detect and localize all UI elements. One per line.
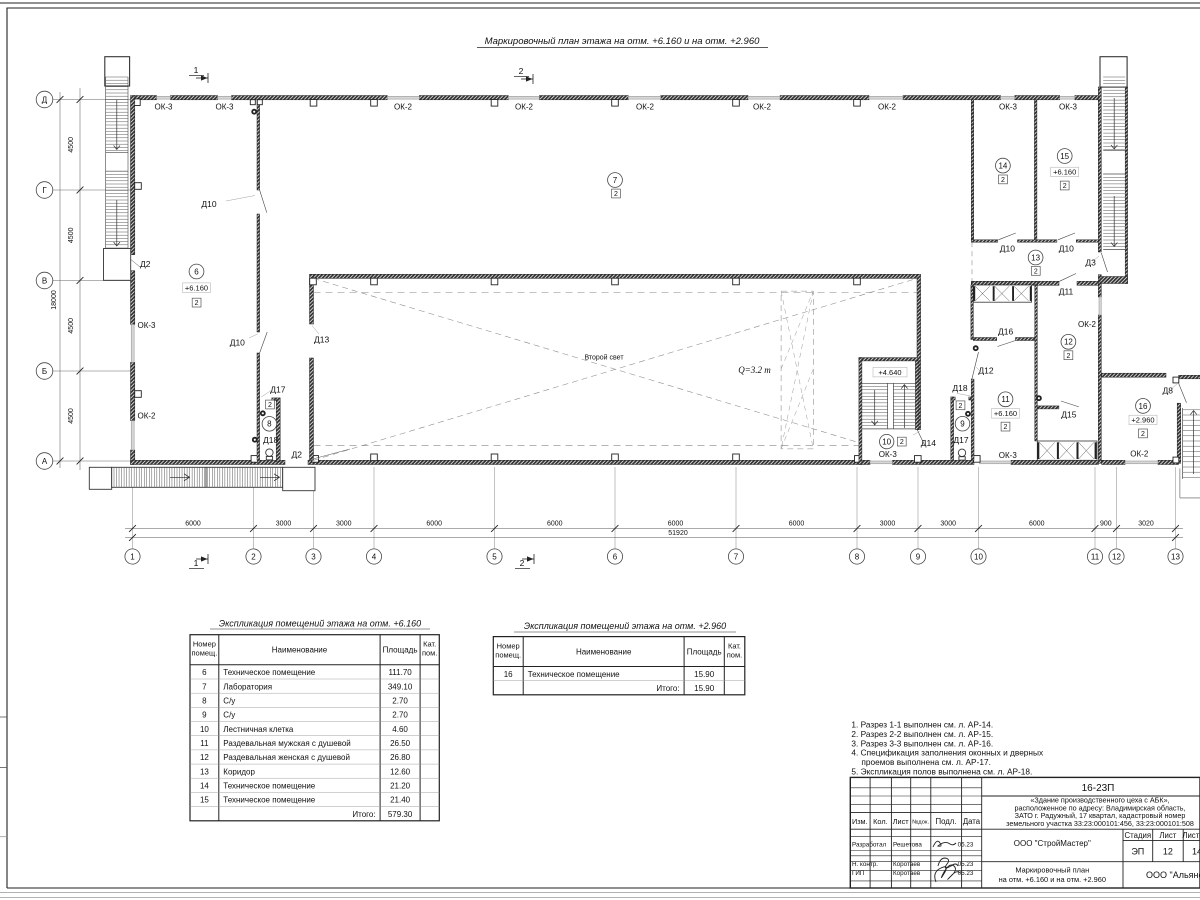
svg-text:5: 5 — [492, 552, 497, 561]
svg-text:3000: 3000 — [880, 521, 896, 528]
svg-text:Площадь: Площадь — [383, 646, 418, 655]
svg-text:13: 13 — [200, 767, 209, 776]
svg-text:ОК-3: ОК-3 — [216, 103, 235, 112]
svg-text:21.40: 21.40 — [390, 796, 411, 805]
svg-text:ГИП: ГИП — [852, 870, 865, 877]
svg-text:11: 11 — [200, 739, 209, 748]
svg-text:Номер: Номер — [497, 641, 520, 650]
svg-text:помещ.: помещ. — [495, 650, 521, 659]
svg-text:1: 1 — [194, 558, 199, 568]
svg-text:2: 2 — [1001, 177, 1005, 184]
svg-text:Номер: Номер — [193, 640, 216, 649]
svg-text:16: 16 — [504, 670, 513, 679]
svg-text:+6.160: +6.160 — [994, 409, 1017, 418]
svg-text:18000: 18000 — [51, 290, 58, 310]
svg-text:ОК-3: ОК-3 — [999, 103, 1018, 112]
svg-text:14: 14 — [1192, 847, 1200, 857]
svg-text:ОК-3: ОК-3 — [138, 321, 157, 330]
svg-text:Д10: Д10 — [201, 199, 216, 209]
svg-text:12: 12 — [1112, 552, 1121, 561]
svg-text:Экспликация помещений этажа на: Экспликация помещений этажа на отм. +6.1… — [219, 618, 421, 628]
svg-text:12: 12 — [1064, 338, 1073, 347]
svg-text:13: 13 — [1171, 552, 1180, 561]
svg-text:ОК-2: ОК-2 — [878, 103, 897, 112]
svg-text:ОК-2: ОК-2 — [394, 103, 413, 112]
svg-text:ОК-3: ОК-3 — [879, 450, 898, 459]
svg-text:ОК-2: ОК-2 — [1130, 450, 1149, 459]
svg-text:ОК-2: ОК-2 — [138, 412, 157, 421]
svg-text:Листов: Листов — [1182, 831, 1200, 840]
svg-text:6000: 6000 — [185, 521, 201, 528]
svg-text:3000: 3000 — [940, 521, 956, 528]
svg-text:14: 14 — [200, 782, 209, 791]
svg-text:05.23: 05.23 — [958, 861, 974, 868]
svg-text:ООО "СтройМастер": ООО "СтройМастер" — [1014, 839, 1091, 848]
svg-text:Техническое помещение: Техническое помещение — [223, 796, 315, 805]
svg-text:на отм. +6.160 и на отм. +2.96: на отм. +6.160 и на отм. +2.960 — [999, 875, 1106, 884]
svg-text:15: 15 — [200, 796, 209, 805]
svg-text:Д17: Д17 — [953, 435, 968, 445]
svg-text:С/у: С/у — [223, 711, 235, 720]
svg-text:2: 2 — [614, 191, 618, 198]
svg-text:Д18: Д18 — [952, 383, 967, 393]
svg-text:Техническое помещение: Техническое помещение — [223, 668, 315, 677]
svg-text:05.23: 05.23 — [958, 870, 974, 877]
svg-text:Б: Б — [42, 367, 47, 376]
svg-text:900: 900 — [1100, 521, 1112, 528]
svg-text:2: 2 — [959, 403, 963, 410]
svg-text:12.60: 12.60 — [390, 767, 411, 776]
svg-text:Лестничная клетка: Лестничная клетка — [223, 725, 294, 734]
svg-text:пом.: пом. — [727, 650, 742, 659]
svg-text:9: 9 — [916, 552, 921, 561]
svg-text:6: 6 — [194, 267, 199, 276]
svg-text:6000: 6000 — [547, 521, 563, 528]
svg-text:+6.160: +6.160 — [1053, 168, 1076, 177]
svg-text:Экспликация помещений этажа на: Экспликация помещений этажа на отм. +2.9… — [524, 621, 726, 631]
svg-text:4: 4 — [372, 552, 377, 561]
svg-text:Д14: Д14 — [921, 438, 936, 448]
svg-text:7: 7 — [202, 682, 207, 691]
svg-text:Маркировочный план этажа на от: Маркировочный план этажа на отм. +6.160 … — [485, 36, 761, 47]
svg-text:ОК-3: ОК-3 — [999, 451, 1018, 460]
svg-text:5. Экспликация полов выполнена: 5. Экспликация полов выполнена см. л. АР… — [851, 767, 1032, 777]
svg-text:Второй свет: Второй свет — [584, 354, 624, 362]
svg-text:ОК-2: ОК-2 — [1078, 320, 1097, 329]
svg-text:Д2: Д2 — [292, 449, 303, 459]
svg-text:Изм.: Изм. — [852, 817, 868, 826]
svg-text:Н. контр.: Н. контр. — [852, 861, 878, 868]
svg-text:3: 3 — [311, 552, 316, 561]
svg-text:Стадия: Стадия — [1125, 831, 1152, 840]
svg-text:2: 2 — [195, 300, 199, 307]
svg-text:4500: 4500 — [68, 227, 75, 243]
svg-text:Д16: Д16 — [998, 327, 1013, 337]
svg-text:ЭП: ЭП — [1131, 847, 1144, 857]
svg-text:8: 8 — [855, 552, 860, 561]
svg-text:111.70: 111.70 — [388, 668, 412, 677]
svg-text:Д18: Д18 — [263, 435, 278, 445]
svg-text:15.90: 15.90 — [694, 670, 715, 679]
svg-text:2.70: 2.70 — [392, 697, 408, 706]
svg-text:Подл.: Подл. — [935, 817, 956, 826]
svg-text:4500: 4500 — [68, 408, 75, 424]
svg-text:3020: 3020 — [1138, 521, 1154, 528]
svg-text:10: 10 — [882, 438, 891, 447]
svg-text:Г: Г — [42, 186, 47, 195]
svg-text:Д8: Д8 — [1163, 386, 1174, 396]
svg-text:2: 2 — [251, 552, 256, 561]
svg-text:12: 12 — [1163, 847, 1173, 857]
svg-text:+4.640: +4.640 — [878, 368, 901, 377]
svg-text:2: 2 — [1141, 431, 1145, 438]
svg-text:2: 2 — [1063, 183, 1067, 190]
svg-text:+2.960: +2.960 — [1131, 416, 1154, 425]
svg-text:Площадь: Площадь — [687, 647, 722, 656]
svg-text:9: 9 — [202, 711, 207, 720]
svg-text:Д10: Д10 — [1000, 244, 1015, 254]
svg-text:3000: 3000 — [276, 521, 292, 528]
svg-text:Кат.: Кат. — [728, 641, 741, 650]
svg-text:Разработал: Разработал — [852, 841, 887, 849]
svg-text:6000: 6000 — [426, 521, 442, 528]
svg-text:Раздевальная мужская с душевой: Раздевальная мужская с душевой — [223, 739, 350, 748]
svg-text:6000: 6000 — [668, 521, 684, 528]
svg-text:Лист: Лист — [1159, 831, 1176, 840]
svg-text:Коротаев: Коротаев — [893, 861, 921, 868]
svg-text:Кат.: Кат. — [423, 640, 436, 649]
svg-text:7: 7 — [613, 176, 618, 185]
svg-text:11: 11 — [1091, 552, 1100, 561]
svg-text:349.10: 349.10 — [388, 682, 413, 691]
svg-text:Д17: Д17 — [270, 384, 285, 394]
svg-text:15.90: 15.90 — [694, 684, 715, 693]
svg-text:Д3: Д3 — [1085, 258, 1096, 268]
svg-text:Q=3.2 т: Q=3.2 т — [738, 365, 771, 375]
svg-text:ОК-3: ОК-3 — [1059, 103, 1078, 112]
svg-text:2: 2 — [900, 439, 904, 446]
svg-text:2: 2 — [519, 66, 524, 76]
svg-text:6000: 6000 — [1029, 521, 1045, 528]
svg-text:Д15: Д15 — [1061, 410, 1076, 420]
svg-text:Раздевальная женская с душевой: Раздевальная женская с душевой — [223, 753, 350, 762]
svg-text:12: 12 — [200, 753, 209, 762]
svg-text:Итого:: Итого: — [656, 684, 679, 693]
svg-text:51920: 51920 — [668, 530, 688, 537]
svg-text:Техническое помещение: Техническое помещение — [223, 782, 315, 791]
svg-text:ОК-3: ОК-3 — [155, 103, 174, 112]
svg-text:6: 6 — [613, 552, 618, 561]
svg-text:8: 8 — [202, 697, 207, 706]
svg-text:помещ.: помещ. — [191, 649, 217, 658]
svg-text:Коридор: Коридор — [223, 767, 255, 776]
svg-text:2: 2 — [1066, 353, 1070, 360]
svg-text:3000: 3000 — [336, 521, 352, 528]
svg-text:26.50: 26.50 — [390, 739, 411, 748]
svg-text:579.30: 579.30 — [388, 810, 413, 819]
svg-text:Техническое помещение: Техническое помещение — [528, 670, 620, 679]
svg-text:9: 9 — [960, 420, 965, 429]
svg-text:21.20: 21.20 — [390, 782, 411, 791]
svg-text:15: 15 — [1060, 152, 1069, 161]
svg-text:Кол.: Кол. — [873, 817, 887, 826]
svg-text:Д13: Д13 — [314, 335, 329, 345]
svg-text:Д2: Д2 — [140, 259, 151, 269]
svg-text:16-23П: 16-23П — [1082, 783, 1115, 794]
svg-text:А: А — [42, 457, 48, 466]
svg-text:Д10: Д10 — [230, 338, 245, 348]
svg-text:пом.: пом. — [422, 649, 437, 658]
svg-text:Маркировочный план: Маркировочный план — [1015, 866, 1089, 875]
svg-text:1: 1 — [194, 65, 199, 75]
svg-text:16: 16 — [1139, 402, 1148, 411]
svg-text:Д: Д — [42, 95, 48, 104]
svg-text:+6.160: +6.160 — [185, 283, 208, 292]
svg-text:4500: 4500 — [68, 137, 75, 153]
svg-text:Д11: Д11 — [1059, 287, 1074, 297]
svg-text:ОК-2: ОК-2 — [636, 103, 655, 112]
svg-text:Лаборатория: Лаборатория — [223, 682, 272, 691]
svg-text:6000: 6000 — [789, 521, 805, 528]
svg-text:ОК-2: ОК-2 — [753, 103, 772, 112]
svg-text:10: 10 — [200, 725, 209, 734]
svg-text:2: 2 — [520, 558, 525, 568]
svg-text:6: 6 — [202, 668, 207, 677]
svg-text:26.80: 26.80 — [390, 753, 411, 762]
svg-text:№док.: №док. — [912, 819, 929, 825]
svg-text:Лист: Лист — [893, 817, 910, 826]
svg-text:4500: 4500 — [68, 318, 75, 334]
svg-text:В: В — [42, 276, 47, 285]
svg-text:Решетова: Решетова — [893, 842, 922, 849]
svg-text:7: 7 — [734, 552, 739, 561]
svg-text:ООО "Альянс": ООО "Альянс" — [1146, 870, 1200, 880]
svg-text:ОК-2: ОК-2 — [515, 103, 534, 112]
svg-text:Коротаев: Коротаев — [893, 870, 921, 877]
svg-text:14: 14 — [998, 162, 1007, 171]
svg-text:Дата: Дата — [963, 817, 981, 826]
svg-text:Итого:: Итого: — [352, 810, 375, 819]
svg-text:11: 11 — [1001, 395, 1010, 404]
svg-text:2: 2 — [268, 402, 272, 409]
svg-text:Наименование: Наименование — [272, 646, 328, 655]
svg-text:8: 8 — [267, 420, 272, 429]
svg-text:2: 2 — [1034, 269, 1038, 276]
svg-text:С/у: С/у — [223, 697, 235, 706]
svg-text:Д12: Д12 — [978, 365, 993, 375]
svg-text:05.23: 05.23 — [958, 842, 974, 849]
svg-text:Наименование: Наименование — [576, 647, 632, 656]
svg-text:2: 2 — [1004, 424, 1008, 431]
svg-text:2.70: 2.70 — [392, 711, 408, 720]
svg-text:1: 1 — [130, 552, 135, 561]
svg-text:10: 10 — [974, 552, 983, 561]
svg-text:4.60: 4.60 — [392, 725, 408, 734]
svg-text:Д10: Д10 — [1059, 244, 1074, 254]
svg-text:земельного участка 33:23:00010: земельного участка 33:23:000101:456, 33:… — [1006, 819, 1194, 828]
svg-text:13: 13 — [1031, 253, 1040, 262]
